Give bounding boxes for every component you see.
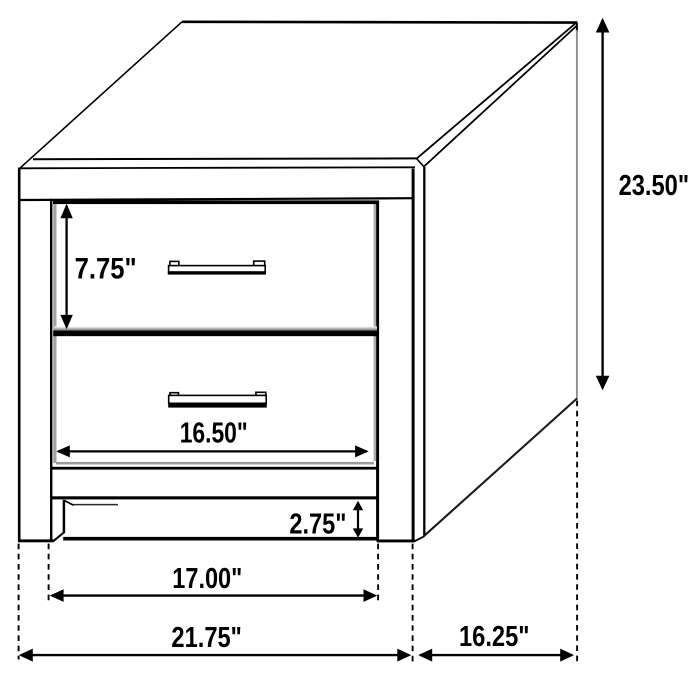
- svg-text:16.25": 16.25": [459, 621, 530, 653]
- svg-text:16.50": 16.50": [180, 418, 248, 450]
- svg-text:7.75": 7.75": [75, 253, 137, 286]
- svg-text:21.75": 21.75": [171, 622, 242, 654]
- svg-text:23.50": 23.50": [619, 170, 690, 202]
- svg-text:17.00": 17.00": [172, 563, 242, 595]
- svg-text:2.75": 2.75": [289, 509, 346, 541]
